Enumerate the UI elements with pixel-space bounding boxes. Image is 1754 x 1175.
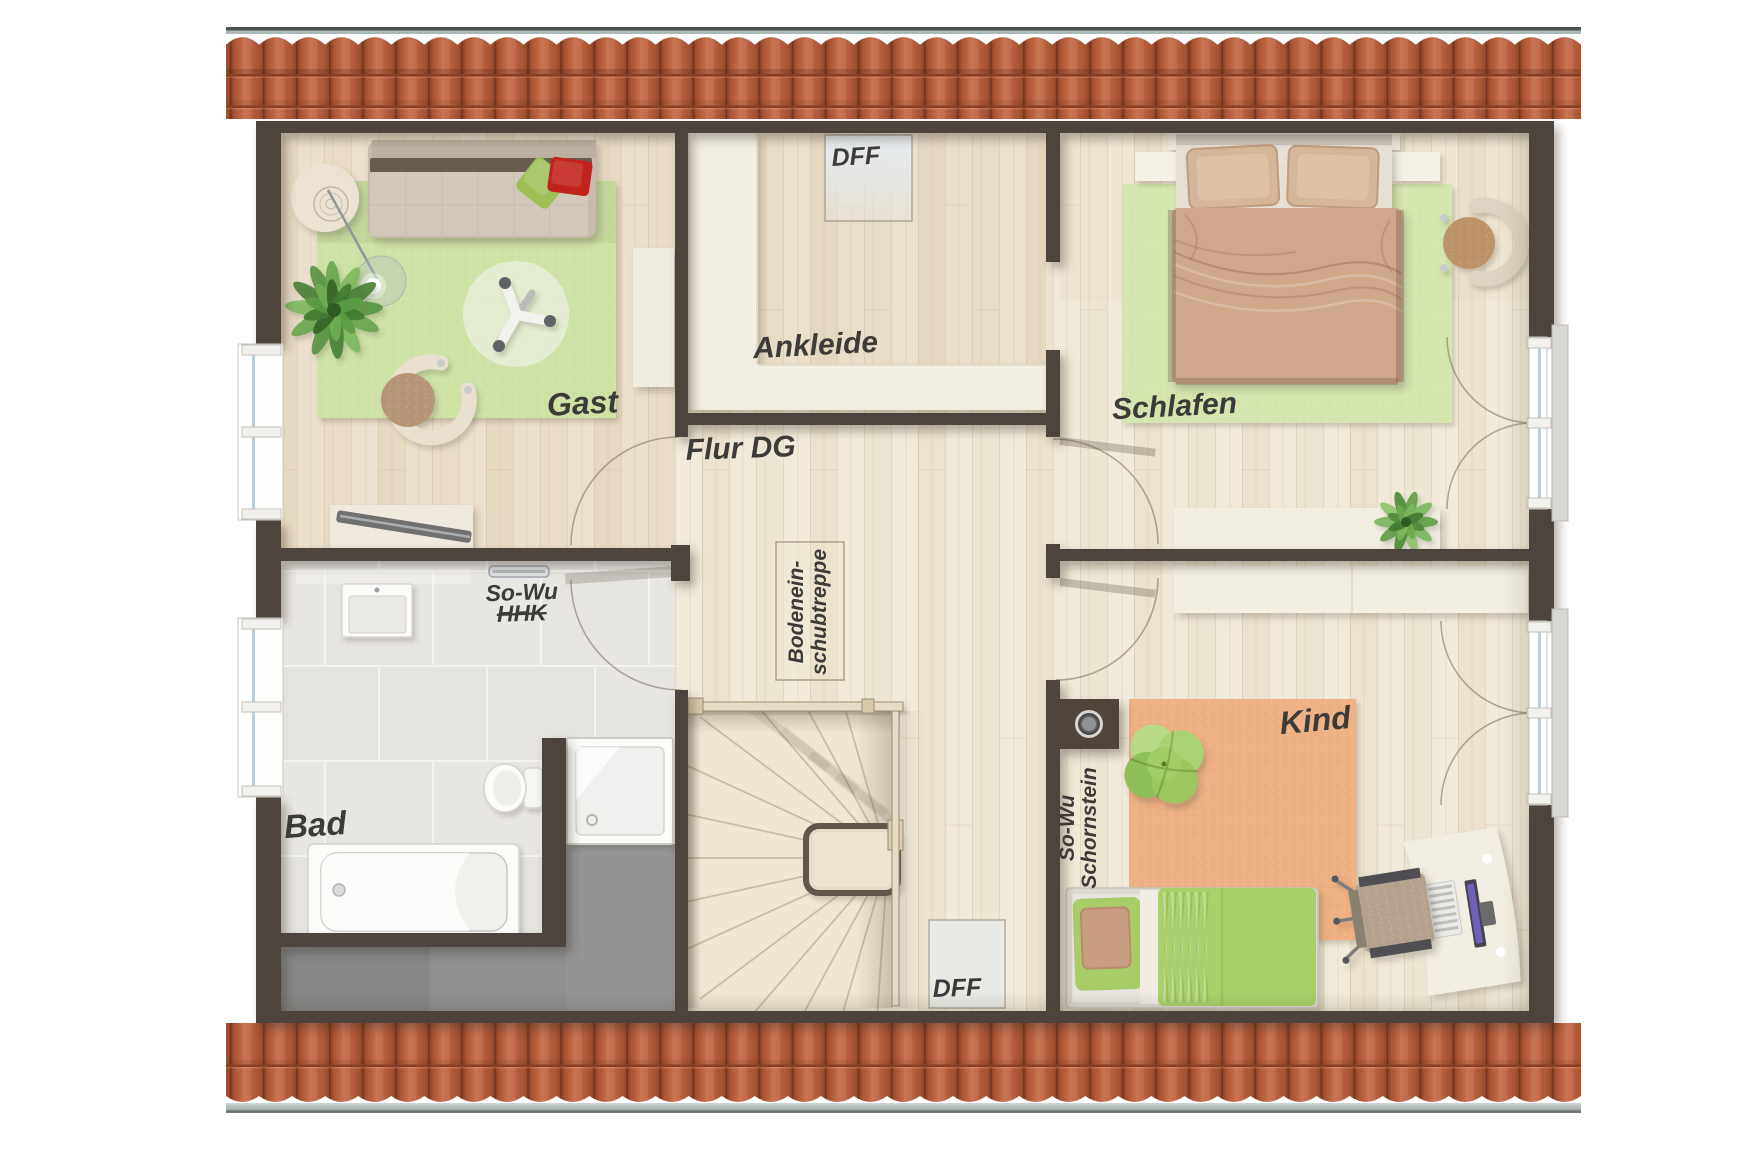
svg-text:So-Wu: So-Wu (1056, 795, 1079, 861)
svg-text:Bodenein-: Bodenein- (785, 561, 808, 664)
svg-text:Flur DG: Flur DG (685, 430, 796, 467)
svg-text:Schornstein: Schornstein (1078, 767, 1101, 888)
svg-text:Gast: Gast (546, 383, 620, 423)
svg-text:Ankleide: Ankleide (751, 326, 879, 366)
svg-text:Bad: Bad (283, 804, 349, 845)
svg-text:Kind: Kind (1278, 699, 1353, 741)
svg-text:Schlafen: Schlafen (1111, 387, 1238, 426)
svg-text:schubtreppe: schubtreppe (808, 549, 831, 675)
svg-text:DFF: DFF (831, 141, 882, 172)
svg-text:DFF: DFF (932, 973, 982, 1003)
svg-text:HHK: HHK (496, 599, 548, 627)
